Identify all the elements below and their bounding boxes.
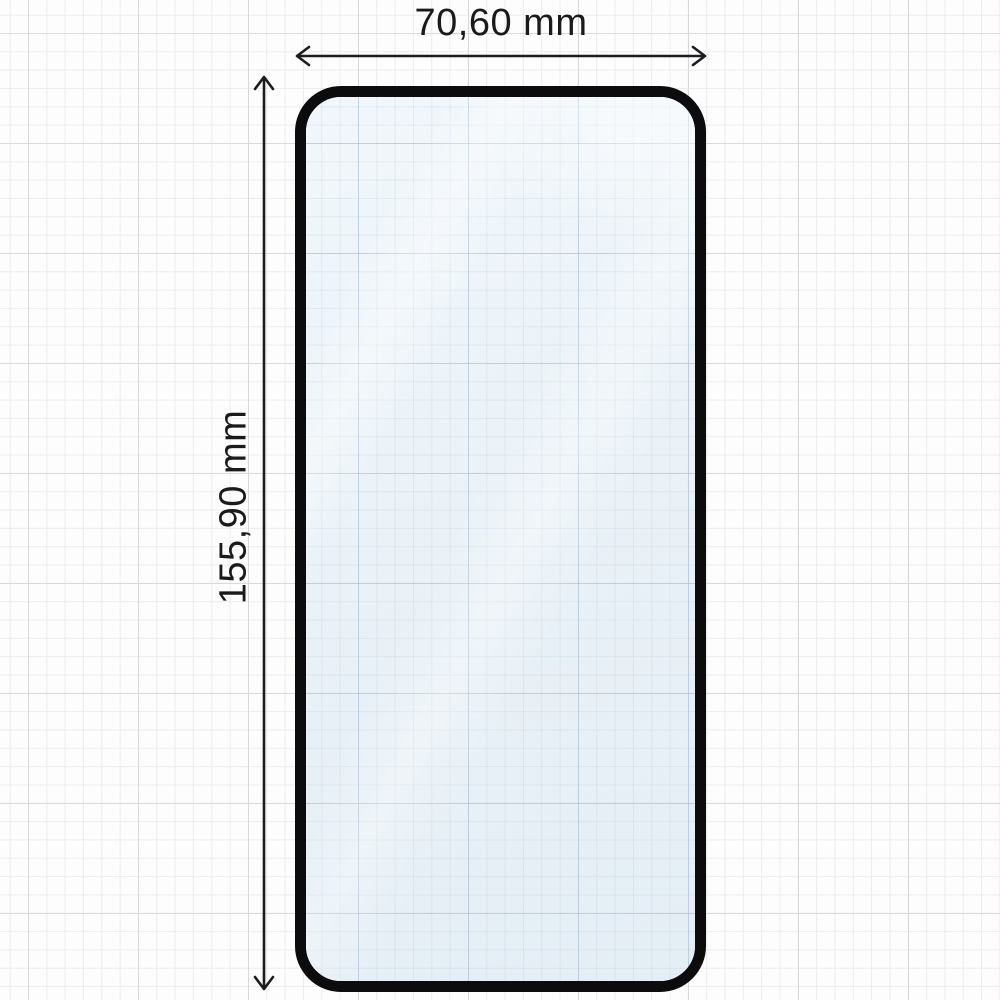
screen-protector-glass <box>295 86 706 992</box>
glass-reflection <box>306 97 695 981</box>
width-dimension-label: 70,60 mm <box>292 0 710 46</box>
width-dimension-arrow-icon <box>292 43 710 69</box>
height-dimension-label: 155,90 mm <box>213 410 256 605</box>
height-dimension-arrow-icon <box>251 72 277 994</box>
diagram-canvas: 70,60 mm 155,90 mm <box>0 0 1000 1000</box>
